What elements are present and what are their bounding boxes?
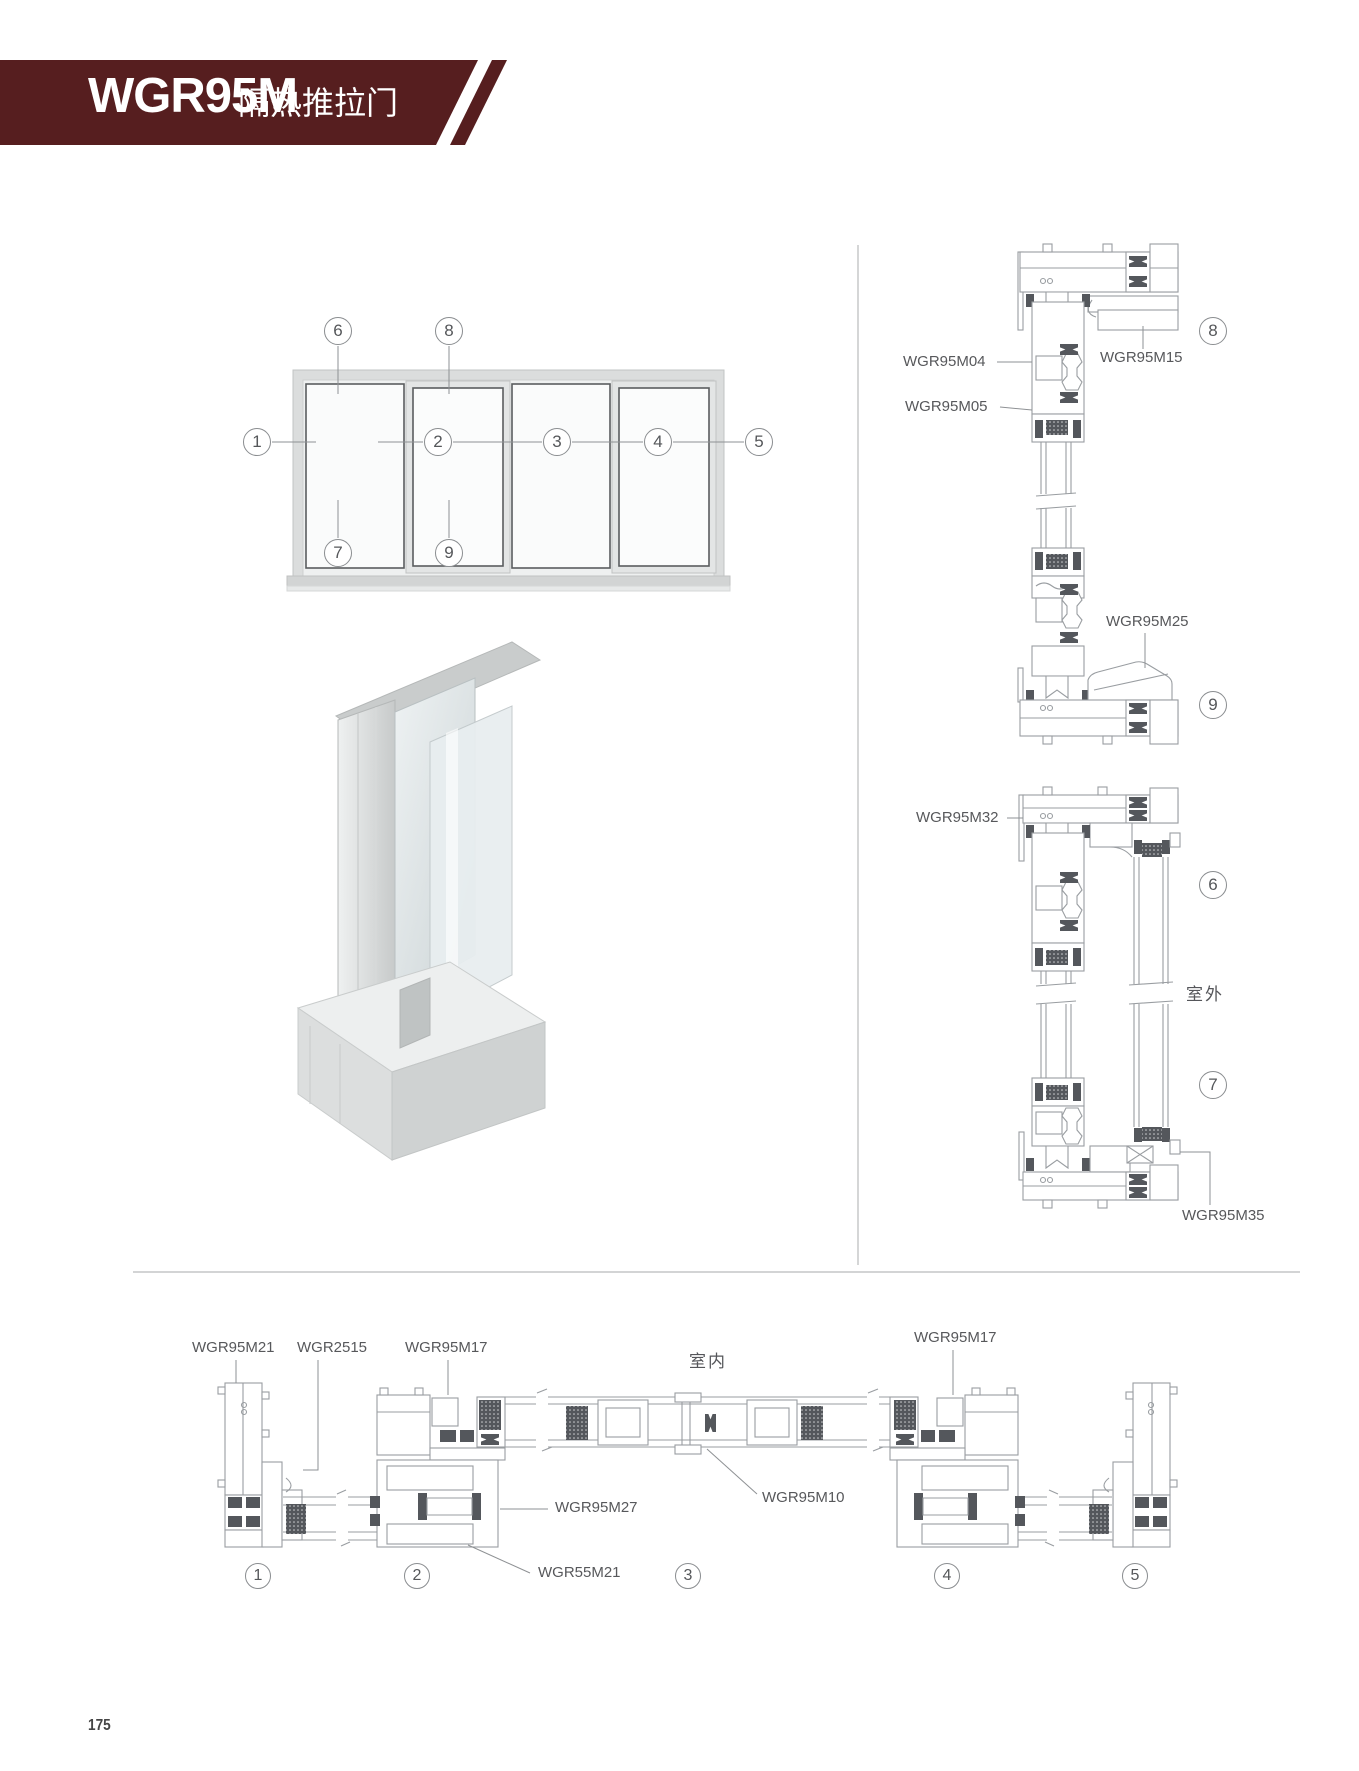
callout-section-7: 7 [1199,1071,1227,1099]
catalog-page: .o{fill:#ffffff;stroke:#999da1;stroke-wi… [0,0,1359,1771]
label-wgr95m04: WGR95M04 [903,354,986,371]
label-wgr95m25: WGR95M25 [1106,614,1189,631]
callout-9: 9 [435,539,463,567]
page-title-name: 隔热推拉门 [238,87,398,119]
technical-drawings: .o{fill:#ffffff;stroke:#999da1;stroke-wi… [0,0,1359,1771]
callout-section-9: 9 [1199,691,1227,719]
label-wgr95m35: WGR95M35 [1182,1208,1265,1225]
section-leader-lines [997,326,1210,1205]
callout-8: 8 [435,317,463,345]
label-wgr2515: WGR2515 [297,1340,367,1357]
label-outdoor: 室外 [1186,986,1224,1005]
plan-callout-4: 4 [934,1563,960,1589]
section-sill [1018,548,1178,744]
label-wgr95m17-left: WGR95M17 [405,1340,488,1357]
callout-3: 3 [543,428,571,456]
plan-callout-5: 5 [1122,1563,1148,1589]
plan-callout-1: 1 [245,1563,271,1589]
page-number: 175 [88,1717,111,1735]
profile-3d-render [298,642,545,1160]
plan-center-band [505,1389,890,1454]
plan-left-half [218,1383,505,1547]
label-wgr95m21: WGR95M21 [192,1340,275,1357]
label-wgr95m17-right: WGR95M17 [914,1330,997,1347]
plan-leader-lines [236,1350,953,1573]
label-wgr55m21: WGR55M21 [538,1565,621,1582]
plan-right-half [890,1383,1177,1547]
label-wgr95m10: WGR95M10 [762,1490,845,1507]
callout-6: 6 [324,317,352,345]
plan-callout-2: 2 [404,1563,430,1589]
callout-4: 4 [644,428,672,456]
label-wgr95m32: WGR95M32 [916,810,999,827]
label-indoor: 室内 [689,1353,727,1372]
section-jamb [1019,787,1180,1208]
label-wgr95m27: WGR95M27 [555,1500,638,1517]
plan-callout-3: 3 [675,1563,701,1589]
callout-2: 2 [424,428,452,456]
section-head [1018,244,1178,548]
callout-section-8: 8 [1199,317,1227,345]
callout-7: 7 [324,539,352,567]
callout-1: 1 [243,428,271,456]
callout-5: 5 [745,428,773,456]
label-wgr95m05: WGR95M05 [905,399,988,416]
label-wgr95m15: WGR95M15 [1100,350,1183,367]
callout-section-6: 6 [1199,871,1227,899]
